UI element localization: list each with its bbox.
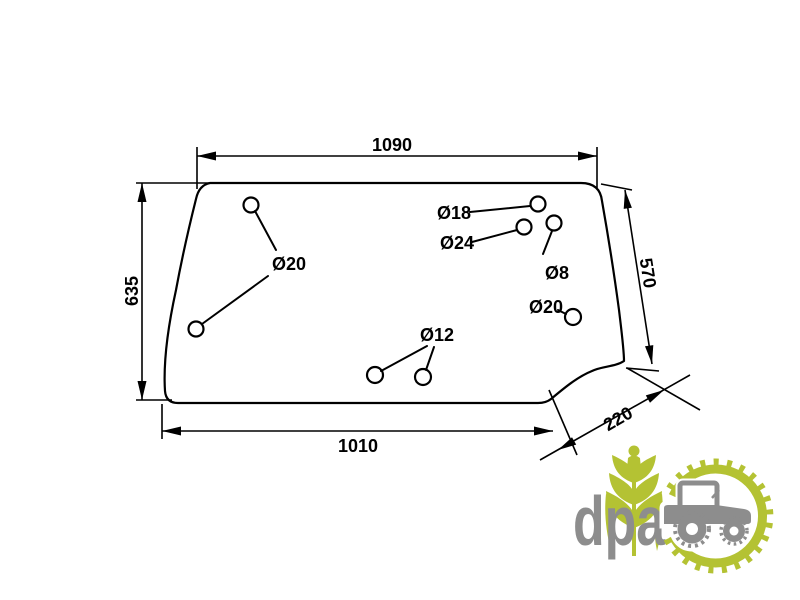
dpa-logo: dpa (573, 446, 770, 571)
leader-d20-lower (202, 276, 268, 324)
label-d8: Ø8 (545, 263, 569, 283)
leader-d12-right (426, 347, 434, 370)
leader-d8 (543, 231, 552, 254)
wheat-head (629, 446, 640, 457)
arrowhead (138, 381, 147, 400)
dimension-bottom-width (162, 404, 553, 439)
screenshot-canvas: Ø20 Ø18 Ø24 Ø8 Ø20 Ø12 1090 635 570 (0, 0, 800, 600)
logo-wordmark: dpa (573, 482, 666, 560)
label-d18: Ø18 (437, 203, 471, 223)
dim-label-top: 1090 (372, 135, 412, 155)
arrowhead (646, 390, 664, 403)
arrowhead (578, 152, 597, 161)
technical-drawing-svg: Ø20 Ø18 Ø24 Ø8 Ø20 Ø12 1090 635 570 (0, 0, 800, 600)
hole-d8 (547, 216, 562, 231)
leader-d12-left (381, 346, 427, 371)
leader-d24 (472, 230, 517, 242)
arrowhead (624, 190, 632, 209)
leader-d18 (470, 206, 530, 212)
label-d24: Ø24 (440, 233, 474, 253)
hole-d12-right (415, 369, 431, 385)
arrowhead (138, 183, 147, 202)
dim-label-notch: 220 (600, 403, 636, 435)
label-d12: Ø12 (420, 325, 454, 345)
wheel-hub (686, 523, 698, 535)
hole-d18 (531, 197, 546, 212)
hole-d20-upper-left (244, 198, 259, 213)
label-d20-right: Ø20 (529, 297, 563, 317)
arrowhead (645, 345, 653, 364)
arrowhead (534, 427, 553, 436)
dim-label-left: 635 (122, 276, 142, 306)
hole-d20-right (565, 309, 581, 325)
leader-lines (202, 206, 566, 371)
dimension-left-height (136, 183, 210, 400)
dim-label-bottom: 1010 (338, 436, 378, 456)
hole-d24 (517, 220, 532, 235)
extension-line (601, 184, 632, 190)
wheel-hub (730, 527, 739, 536)
label-d20-left: Ø20 (272, 254, 306, 274)
arrowhead (162, 427, 181, 436)
arrowhead (197, 152, 216, 161)
hole-d12-left (367, 367, 383, 383)
leader-d20-upper (255, 211, 276, 250)
